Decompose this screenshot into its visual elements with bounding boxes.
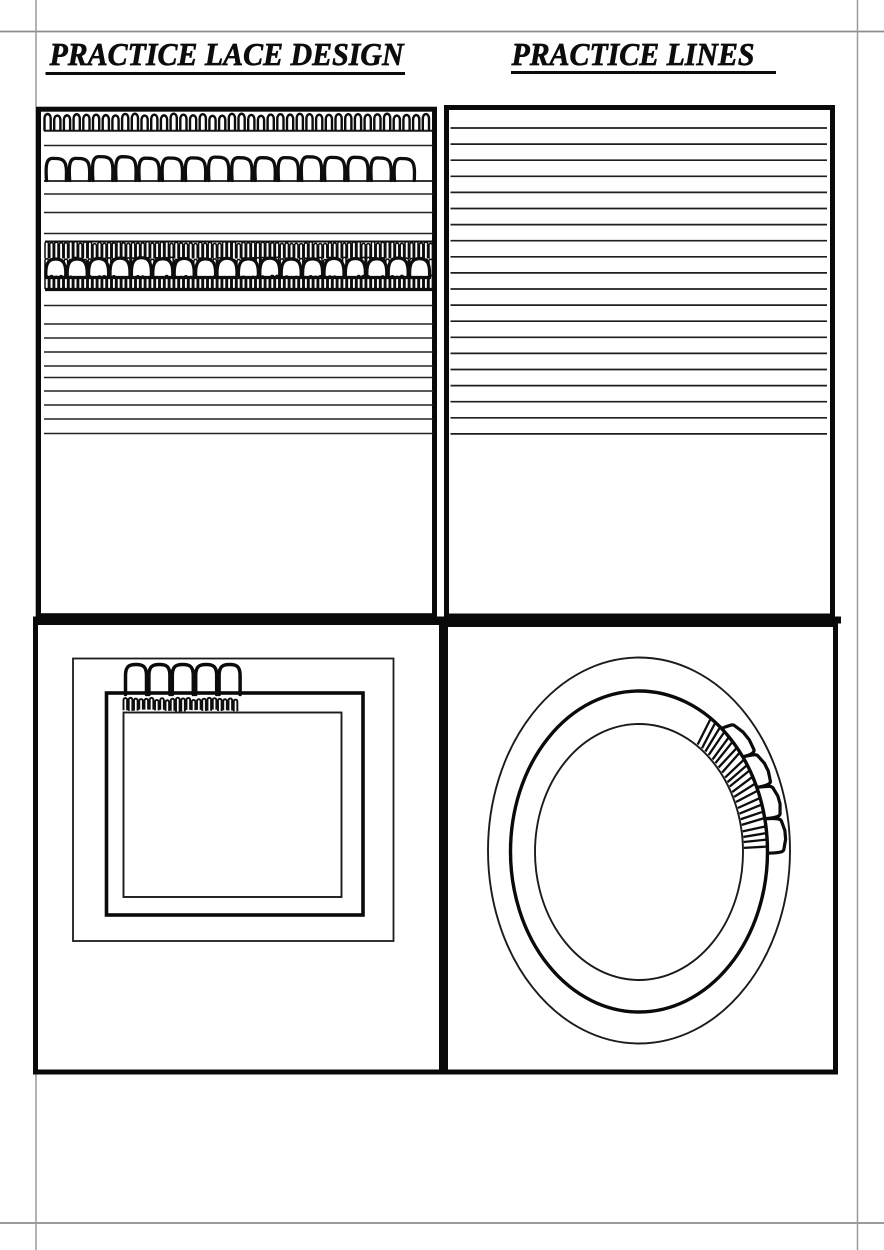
svg-text:PRACTICE LACE DESIGN: PRACTICE LACE DESIGN (49, 36, 406, 72)
svg-text:PRACTICE LINES: PRACTICE LINES (511, 36, 755, 72)
